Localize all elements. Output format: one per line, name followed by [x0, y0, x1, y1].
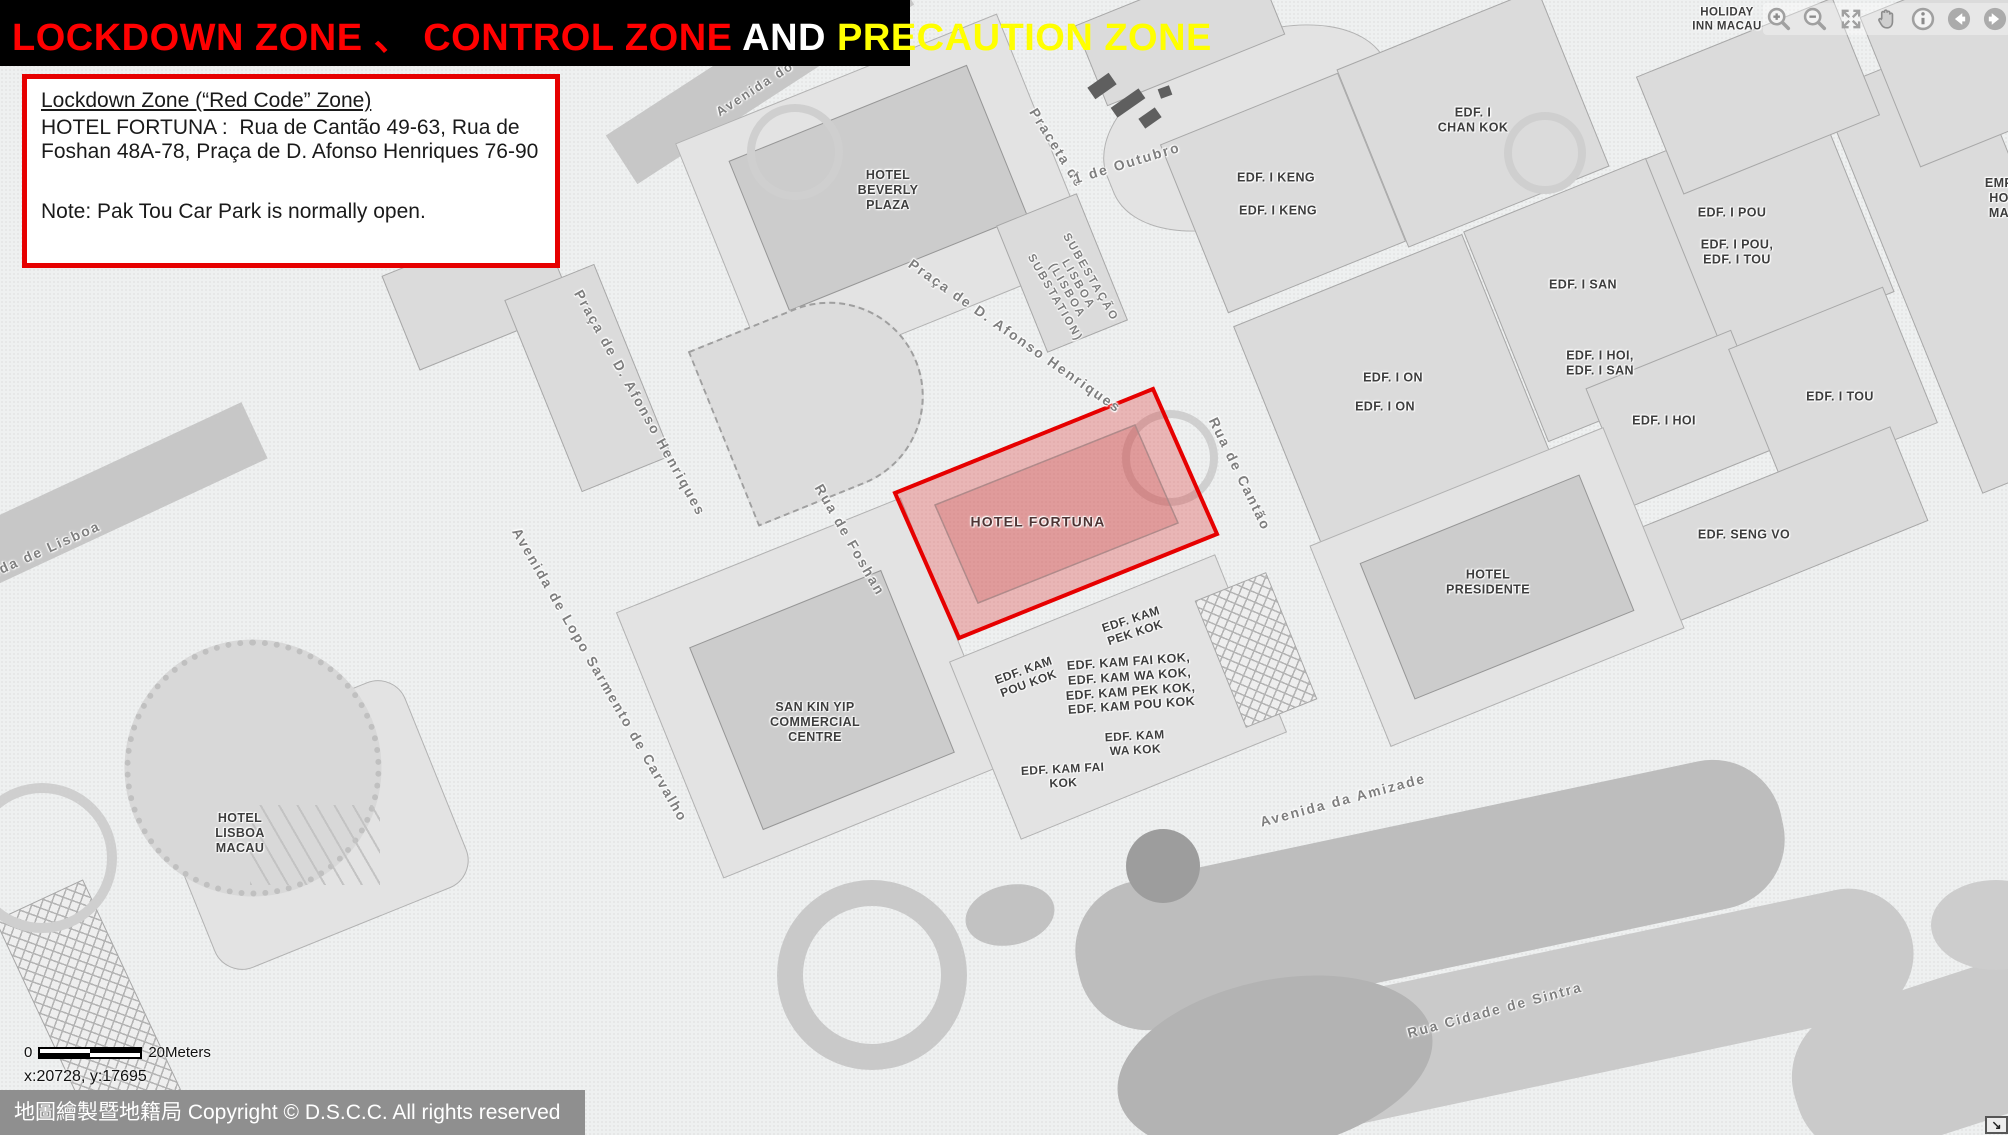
building-label: HOLIDAY INN MACAU: [1692, 6, 1761, 33]
zoom-in-icon: [1765, 5, 1793, 33]
title-segment: PRECAUTION ZONE: [837, 17, 1212, 59]
street-label: 1 de Outubro: [1071, 139, 1182, 187]
building-label: EDF. I HOI: [1632, 414, 1696, 429]
pan-button[interactable]: [1872, 4, 1902, 34]
title-segment: AND: [733, 17, 838, 59]
previous-extent-button[interactable]: [1944, 4, 1974, 34]
scale-bar-graphic: [38, 1047, 142, 1059]
lockdown-info-box: Lockdown Zone (“Red Code” Zone) HOTEL FO…: [22, 74, 560, 268]
title-bar: LOCKDOWN ZONE 、 CONTROL ZONE AND PRECAUT…: [0, 0, 910, 66]
full-extent-button[interactable]: [1836, 4, 1866, 34]
building-label: EDF. I KENG: [1237, 171, 1315, 186]
overview-map-button[interactable]: ↘: [1985, 1116, 2008, 1134]
next-extent-icon: [1981, 5, 2008, 33]
building-label: SAN KIN YIP COMMERCIAL CENTRE: [770, 700, 860, 744]
zoom-in-button[interactable]: [1764, 4, 1794, 34]
building-label: HOTEL BEVERLY PLAZA: [858, 168, 919, 212]
street-label: Praça de D. Afonso Henriques: [571, 287, 710, 519]
info-heading: Lockdown Zone (“Red Code” Zone): [41, 89, 541, 113]
building-label: EDF. SENG VO: [1698, 528, 1790, 543]
title-segment: LOCKDOWN ZONE 、 CONTROL ZONE: [12, 17, 733, 59]
info-button[interactable]: [1908, 4, 1938, 34]
copyright-bar: 地圖繪製暨地籍局 Copyright © D.S.C.C. All rights…: [0, 1090, 585, 1135]
street-label: SUBESTAÇÃO LISBOA (LISBOA SUBSTATION): [1024, 231, 1121, 344]
building-label: EDF. KAM FAI KOK, EDF. KAM WA KOK, EDF. …: [1063, 650, 1197, 718]
map-toolbar: [1763, 3, 2008, 35]
building-label: EDF. I POU, EDF. I TOU: [1701, 237, 1773, 267]
street-label: Rua Cidade de Sintra: [1406, 979, 1585, 1042]
building-label: EDF. I POU: [1698, 206, 1767, 221]
previous-extent-icon: [1945, 5, 1973, 33]
page-title: LOCKDOWN ZONE 、 CONTROL ZONE AND PRECAUT…: [12, 6, 1212, 61]
zoom-out-icon: [1801, 5, 1829, 33]
building-label: EDF. KAM WA KOK: [1104, 727, 1165, 758]
street-label: Avenida de Lopo Sarmento de Carvalho: [509, 525, 692, 825]
info-body: HOTEL FORTUNA : Rua de Cantão 49-63, Rua…: [41, 116, 546, 164]
scale-bar: 0 20Meters: [24, 1044, 211, 1061]
info-icon: [1909, 5, 1937, 33]
street-label: Avenida de Lisboa: [0, 517, 103, 596]
street-label: Rua de Cantão: [1205, 415, 1274, 534]
building-label: EDF. I ON: [1355, 400, 1415, 415]
building-label: HOTEL PRESIDENTE: [1446, 567, 1530, 597]
cursor-coordinates: x:20728, y:17695: [24, 1068, 147, 1086]
full-extent-icon: [1837, 5, 1865, 33]
building-label: EDF. I HOI, EDF. I SAN: [1566, 348, 1634, 378]
building-label: EDF. KAM FAI KOK: [1021, 760, 1106, 793]
building-label: EMP HO MA: [1985, 176, 2008, 220]
building-label: EDF. I SAN: [1549, 278, 1617, 293]
building-label: HOTEL FORTUNA: [970, 514, 1105, 531]
pan-icon: [1873, 5, 1901, 33]
street-label: Rua de Foshan: [811, 481, 888, 599]
info-note: Note: Pak Tou Car Park is normally open.: [41, 200, 541, 224]
scale-bar-end: 20Meters: [148, 1044, 211, 1061]
zoom-out-button[interactable]: [1800, 4, 1830, 34]
street-label: Avenida da Amizade: [1258, 770, 1428, 830]
next-extent-button[interactable]: [1980, 4, 2008, 34]
building-label: EDF. KAM POU KOK: [993, 653, 1059, 700]
building-label: EDF. I KENG: [1239, 204, 1317, 219]
scale-bar-start: 0: [24, 1044, 32, 1061]
building-label: EDF. KAM PEK KOK: [1100, 603, 1166, 648]
building-label: EDF. I CHAN KOK: [1438, 105, 1509, 135]
building-label: EDF. I ON: [1363, 371, 1423, 386]
building-label: HOTEL LISBOA MACAU: [215, 811, 265, 855]
arrow-se-icon: ↘: [1991, 1118, 2001, 1132]
building-label: EDF. I TOU: [1806, 390, 1874, 405]
